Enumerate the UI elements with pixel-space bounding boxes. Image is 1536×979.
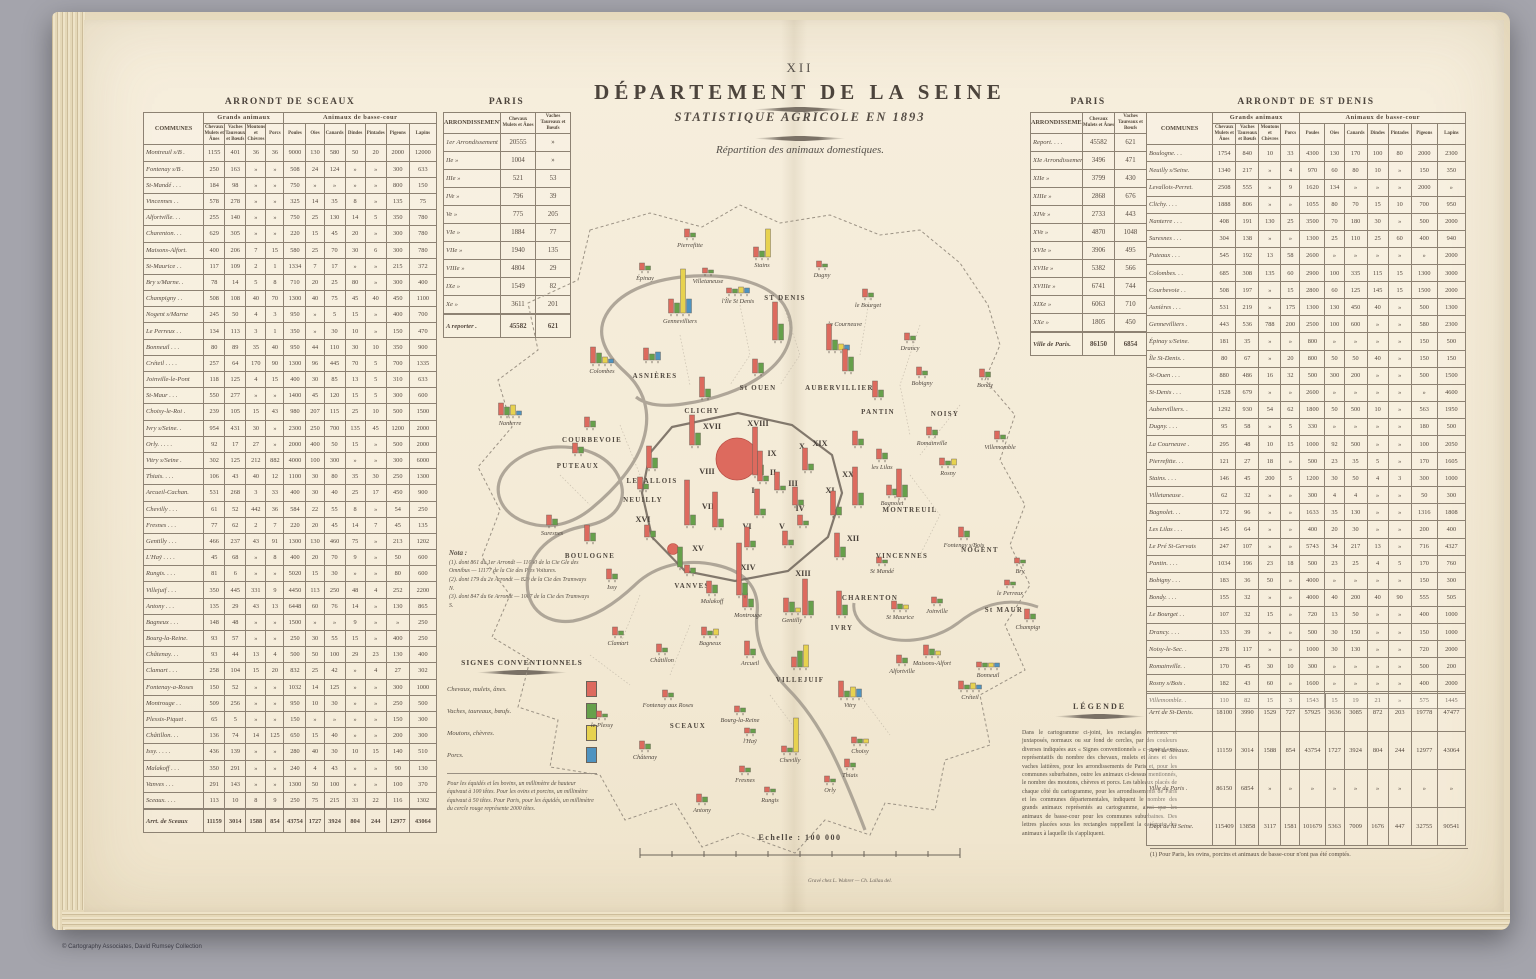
row-value: 25 [306,663,324,679]
row-value: 184 [204,177,225,193]
row-value: 2900 [1300,265,1325,282]
table-row: Bagneux . . .14848»»1500»»9»»250 [144,614,437,630]
row-value: 32 [1236,487,1259,504]
sceaux-table-title: ARRONDT DE SCEAUX [143,97,437,107]
row-label: Puteaux . . . [1147,247,1213,264]
row-value: » [1281,770,1300,808]
row-value: 90541 [1437,808,1465,846]
row-label: Chevilly . . . [144,501,204,517]
row-value: 500 [1437,418,1465,435]
col-header-arrondissements: ARRONDISSEMENTS [1031,113,1083,134]
row-value: 108 [225,291,246,307]
row-value: 727 [1281,694,1300,732]
row-value: 40 [246,469,266,485]
row-value: 1048 [1115,224,1147,242]
row-value: 57925 [1300,694,1325,732]
row-value: 1805 [1083,314,1115,333]
row-value: 50 [306,647,324,663]
row-value: » [365,614,386,630]
row-value: 16 [1259,367,1281,384]
department-summary-table: Arrt de St-Denis.18100399015297275792536… [1146,693,1466,846]
row-label: Antony . . . [144,598,204,614]
row-value: 217 [1344,538,1367,555]
svg-text:le Bourget: le Bourget [855,302,881,309]
map-site--pinay: Épinay [635,263,654,282]
row-value: 760 [1437,555,1465,572]
row-value: » [1388,504,1411,521]
table-row: Issy. . . . .436139»»28040301015140510 [144,744,437,760]
row-value: 150 [386,711,409,727]
row-value: 531 [204,485,225,501]
row-value: 40 [324,485,345,501]
row-value: » [246,744,266,760]
row-label: Romainville. . [1147,658,1213,675]
row-value: » [1325,770,1344,808]
row-value: » [1325,418,1344,435]
row-value: » [246,614,266,630]
row-value: 3014 [1236,732,1259,770]
row-value: » [345,161,365,177]
table-row: 1er Arrondissement20555» [444,134,571,152]
row-value: 2733 [1083,206,1115,224]
col-header: Oies [1325,124,1344,145]
row-value: 100 [1367,145,1388,162]
row-value: » [1367,435,1388,452]
row-value: 89 [225,339,246,355]
row-value: 30 [306,469,324,485]
row-value: 880 [1213,367,1236,384]
row-value: 3000 [1437,265,1465,282]
map-site-i: I [751,486,754,495]
row-value: 5 [1388,555,1411,572]
row-value: 172 [1213,504,1236,521]
row-value: » [365,177,386,193]
row-value: 44 [306,339,324,355]
row-value: 629 [204,226,225,242]
row-label: Clichy. . . . [1147,196,1213,213]
row-value: » [266,776,284,792]
row-value: 450 [386,485,409,501]
row-value: » [1344,247,1367,264]
row-value: 302 [409,663,436,679]
row-value: 30 [306,485,324,501]
svg-text:Bondy: Bondy [977,382,993,389]
row-value: 400 [306,436,324,452]
row-value: 95 [1213,418,1236,435]
row-value: 105 [225,404,246,420]
row-value: » [1259,641,1281,658]
row-value: 1000 [1437,606,1465,623]
row-value: » [1259,487,1281,504]
svg-text:Bobigny: Bobigny [912,380,933,387]
row-value: 443 [1115,206,1147,224]
table-row: Arrt de St-Denis.18100399015297275792536… [1147,694,1466,732]
row-value: 4 [1367,470,1388,487]
svg-text:l'Île St Denis: l'Île St Denis [722,297,755,305]
row-value: 882 [266,452,284,468]
row-value: 300 [1325,367,1344,384]
row-value: 130 [409,760,436,776]
row-value: » [365,550,386,566]
row-label: Pantin. . . . [1147,555,1213,572]
row-label: Villejuif . . . [144,582,204,598]
row-value: 40 [266,339,284,355]
row-value: » [1325,247,1344,264]
row-value: 1000 [1300,641,1325,658]
row-value: 40 [1367,350,1388,367]
row-value: » [1344,418,1367,435]
svg-text:ASNIÈRES: ASNIÈRES [633,372,678,380]
row-label: St-Ouen . . . [1147,367,1213,384]
row-value: 8 [266,550,284,566]
row-label: Levallois-Perret. [1147,179,1213,196]
col-header: Pigeons [1411,124,1437,145]
row-value: 1676 [1367,808,1388,846]
row-value: 100 [1325,316,1344,333]
row-value: 310 [386,372,409,388]
row-value: 170 [1411,555,1437,572]
row-value: 400 [204,242,225,258]
svg-text:VILLEJUIF: VILLEJUIF [776,677,824,684]
svg-text:Rosny: Rosny [939,470,956,477]
row-value: 70 [324,242,345,258]
row-value: 4000 [284,452,306,468]
svg-text:Montrouge: Montrouge [733,612,762,619]
row-value: » [345,776,365,792]
row-value: » [1259,299,1281,316]
svg-text:AUBERVILLIERS: AUBERVILLIERS [805,385,879,392]
row-value: 305 [225,226,246,242]
row-value: » [1367,418,1388,435]
svg-text:Villemomble: Villemomble [984,444,1016,451]
row-label: Bonneuil . . . [144,339,204,355]
row-value: 150 [1437,350,1465,367]
row-value: 280 [284,744,306,760]
col-header: Chevaux Mulets et Ânes [204,124,225,145]
svg-text:Stains: Stains [754,262,770,269]
row-label: 1er Arrondissement [444,134,501,152]
row-value: 43 [1236,675,1259,692]
table-row: St-Maur . . .550277»»140045120155300600 [144,388,437,404]
row-value: 840 [1236,145,1259,162]
row-label: Nanterre . . . [1147,213,1213,230]
table-row: Le Bourget . .1073215»7201350»»4001000 [1147,606,1466,623]
row-value: » [246,226,266,242]
row-value: 4870 [1083,224,1115,242]
col-header: Vaches Taureaux et Bœufs [225,124,246,145]
row-value: 401 [225,145,246,161]
row-value: 80 [1325,196,1344,213]
table-row: Neuilly s/Seine.1340217»4970608010»15035… [1147,162,1466,179]
row-value: 3 [1388,470,1411,487]
svg-text:Issy: Issy [606,584,617,591]
row-value: 203 [1388,694,1411,732]
svg-text:VANVES: VANVES [674,583,709,590]
row-value: » [1367,675,1388,692]
row-value: 136 [204,728,225,744]
map-sites-layer: PierrefitteÉpinayVilletaneuseStainsDugny… [498,229,1040,814]
row-value: 33 [266,485,284,501]
row-value: 40 [1367,589,1388,606]
row-value: » [246,711,266,727]
row-value: » [345,728,365,744]
row-value: » [1281,538,1300,555]
row-value: 200 [1411,521,1437,538]
row-value: » [1367,179,1388,196]
row-value: 1200 [386,420,409,436]
svg-text:BOULOGNE: BOULOGNE [565,553,615,560]
row-value: 3500 [1300,213,1325,230]
row-value: 1032 [284,679,306,695]
scale-label: Echelle : 100 000 [620,833,980,842]
row-value: 30 [1325,641,1344,658]
row-value: 32 [1236,589,1259,606]
row-value: » [266,631,284,647]
row-label: Champigny . . [144,291,204,307]
row-value: 62 [225,517,246,533]
svg-text:Orly: Orly [824,787,836,794]
map-bar-cluster [783,531,794,548]
row-value: 54 [386,501,409,517]
engraver-imprint: Gravé chez L. Wuhrer — Ch. Lallau del. [700,878,1000,884]
row-value: 117 [1236,641,1259,658]
row-value: 750 [284,177,306,193]
row-value: 191 [1236,213,1259,230]
row-value: » [365,533,386,549]
row-value: » [365,436,386,452]
row-value: 75 [345,533,365,549]
table-row: Fontenay s/B .250163»»50824124»»300633 [144,161,437,177]
row-value: 219 [1236,299,1259,316]
svg-text:Bry: Bry [1015,568,1024,575]
row-value: 130 [1344,504,1367,521]
row-value: » [365,307,386,323]
row-value: 500 [1411,367,1437,384]
row-value: 4 [365,582,386,598]
map-site-pantin: PANTIN [861,409,895,416]
row-value: 300 [386,679,409,695]
row-label: Bry s/Marne. . [144,274,204,290]
table-row: Créteil . . . .2576417090130096445705700… [144,355,437,371]
row-value: 33 [1281,145,1300,162]
flourish-divider [1055,714,1145,719]
row-value: » [345,663,365,679]
map-bar-cluster [753,359,764,376]
row-value: 600 [409,388,436,404]
table-row: Villejuif . . .3504453319445011325048425… [144,582,437,598]
row-value: » [1281,333,1300,350]
row-value: 1500 [409,404,436,420]
row-value: 500 [1300,555,1325,572]
map-bar-cluster [853,431,864,448]
table-row: Les Lilas . . .14564»»4002030»»200400 [1147,521,1466,538]
map-site-bobigny: Bobigny [912,367,933,387]
row-value: 150 [204,679,225,695]
row-value: 62 [1213,487,1236,504]
row-value: 52 [225,679,246,695]
col-header: Porcs [1281,124,1300,145]
svg-text:III: III [788,479,798,488]
table-row: XVe »48701048 [1031,224,1147,242]
row-value: 25 [345,485,365,501]
row-value: 4 [246,307,266,323]
map-site-xiv: XIV [740,563,755,572]
row-label: XXe » [1031,314,1083,333]
row-value: 443 [1213,316,1236,333]
stdenis-table: COMMUNES Grands animaux Animaux de basse… [1146,112,1466,709]
row-value: 300 [1300,658,1325,675]
row-label: Asnières . . . [1147,299,1213,316]
col-header: Moutons et Chèvres [1259,124,1281,145]
row-value: 250 [306,420,324,436]
row-value: 77 [204,517,225,533]
row-label: Villetaneuse . [1147,487,1213,504]
row-value: 35 [1325,504,1344,521]
map-site-xvi: XVI [635,515,650,524]
map-site-st-maurice: St Maurice [886,601,914,621]
row-value: 1292 [1213,401,1236,418]
row-value: 1754 [1213,145,1236,162]
row-value: » [365,226,386,242]
flourish-divider [755,133,845,143]
row-value: 85 [324,372,345,388]
row-value: 300 [409,711,436,727]
row-value: 300 [1437,572,1465,589]
row-value: 676 [1115,188,1147,206]
row-value: 100 [386,776,409,792]
row-value: 10 [1388,196,1411,213]
row-value: 175 [1281,299,1300,316]
row-value: 125 [1344,282,1367,299]
row-value: 3906 [1083,242,1115,260]
row-value: 22 [365,792,386,809]
row-value: » [1259,196,1281,213]
row-value: 400 [1437,521,1465,538]
svg-text:Antony: Antony [692,807,711,814]
map-site-iii: III [788,479,798,488]
row-value: 15 [345,388,365,404]
row-value: 1340 [1213,162,1236,179]
row-value: » [1437,770,1465,808]
row-value: 50 [225,307,246,323]
svg-text:l'Haÿ: l'Haÿ [743,738,757,745]
row-label: Stains. . . . [1147,470,1213,487]
row-value: 1100 [409,291,436,307]
row-value: 300 [386,452,409,468]
row-value: 40 [306,744,324,760]
row-value: 600 [409,550,436,566]
row-value: 500 [1411,299,1437,316]
row-value: 30 [1325,470,1344,487]
row-value: 300 [409,728,436,744]
row-value: » [365,631,386,647]
row-label: Issy. . . . . [144,744,204,760]
row-value: » [1259,179,1281,196]
row-value: 252 [386,582,409,598]
row-value: » [345,679,365,695]
row-value: 200 [1437,658,1465,675]
row-label: St-Maur . . . [144,388,204,404]
row-value: » [1411,247,1437,264]
row-value: 9 [266,582,284,598]
row-value: 6854 [1236,770,1259,808]
table-row: Stains. . . .14645200512003050433001000 [1147,470,1466,487]
row-value: 125 [225,452,246,468]
paris-left-title: PARIS [443,97,570,107]
svg-text:Alfortville: Alfortville [888,668,915,675]
row-value: 14 [225,274,246,290]
table-row: XIIIe »2868676 [1031,188,1147,206]
row-value: 43 [266,404,284,420]
row-value: » [1344,333,1367,350]
row-value: 133 [1213,624,1236,641]
row-value: 13858 [1236,808,1259,846]
row-label: XIIIe » [1031,188,1083,206]
svg-text:ST DENIS: ST DENIS [764,295,806,302]
row-value: 18 [1259,453,1281,470]
row-value: 295 [1213,435,1236,452]
row-value: 325 [284,193,306,209]
row-label: Épinay s/Seine. [1147,333,1213,350]
table-row: Île St-Denis. .8067»20800505040»150150 [1147,350,1466,367]
table-row: Vanves . . .291143»»130050100»»100370 [144,776,437,792]
map-site-joinville: Joinville [926,597,948,615]
row-value: 50 [1259,572,1281,589]
row-value: 81 [204,566,225,582]
row-value: 3117 [1259,808,1281,846]
row-value: 2508 [1213,179,1236,196]
row-value: 15 [1388,265,1411,282]
row-value: 2000 [1411,145,1437,162]
row-value: 75 [306,792,324,809]
row-value: 531 [1213,299,1236,316]
table-row: XIIe »3799430 [1031,170,1147,188]
row-value: 163 [225,161,246,177]
row-value: » [1388,316,1411,333]
row-value: 135 [1259,265,1281,282]
row-value: 91 [266,533,284,549]
svg-text:Villetaneuse: Villetaneuse [693,278,724,285]
row-value: 1800 [1300,401,1325,418]
row-value: 780 [409,210,436,226]
row-value: 125 [225,372,246,388]
row-value: 3 [246,323,266,339]
row-value: 247 [1213,538,1236,555]
map-bar-cluster [835,533,846,560]
row-value: » [1259,230,1281,247]
col-header-arrondissements: ARRONDISSEMENTS [444,113,501,134]
row-value: » [1388,384,1411,401]
row-value: » [1281,572,1300,589]
row-label: Colombes. . . [1147,265,1213,282]
row-value: » [324,614,345,630]
map-bar-cluster [803,448,814,473]
row-value: » [266,436,284,452]
svg-text:Vitry: Vitry [844,702,856,709]
row-value: 509 [204,695,225,711]
row-value: 10 [1367,162,1388,179]
page-content: XII DÉPARTEMENT DE LA SEINE STATISTIQUE … [0,0,1536,979]
row-value: 27 [1236,453,1259,470]
col-group-grands-animaux: Grands animaux [1213,113,1300,124]
page-title: DÉPARTEMENT DE LA SEINE [560,80,1040,105]
row-label: Vincennes . . [144,193,204,209]
row-value: » [266,161,284,177]
row-value: » [1388,350,1411,367]
row-value: 250 [409,631,436,647]
svg-text:XIII: XIII [795,569,810,578]
row-value: 30 [365,469,386,485]
